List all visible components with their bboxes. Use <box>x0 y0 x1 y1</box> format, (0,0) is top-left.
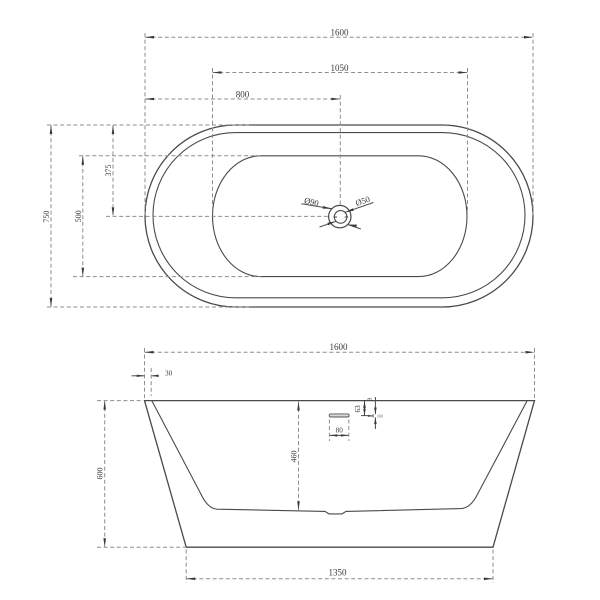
svg-text:460: 460 <box>290 451 299 463</box>
svg-text:500: 500 <box>74 210 83 222</box>
svg-text:1350: 1350 <box>329 567 348 577</box>
svg-text:1600: 1600 <box>330 342 349 352</box>
svg-text:Ø50: Ø50 <box>354 194 371 208</box>
svg-text:600: 600 <box>96 468 105 480</box>
svg-text:1050: 1050 <box>331 63 350 73</box>
svg-text:1600: 1600 <box>331 27 350 37</box>
svg-text:30: 30 <box>165 369 173 377</box>
svg-text:63: 63 <box>354 405 362 413</box>
svg-text:8: 8 <box>366 398 373 401</box>
svg-text:Ø90: Ø90 <box>303 195 320 208</box>
svg-text:80: 80 <box>336 426 344 434</box>
svg-text:375: 375 <box>104 165 113 177</box>
svg-text:750: 750 <box>42 211 51 223</box>
svg-text:800: 800 <box>236 89 250 99</box>
